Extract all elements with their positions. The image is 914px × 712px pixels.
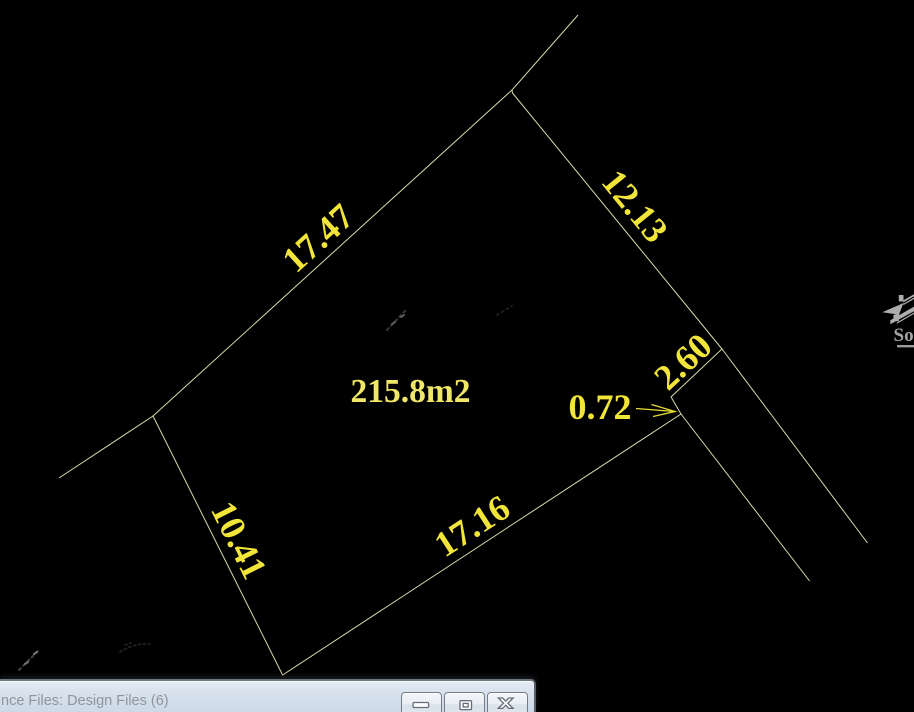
svg-text:2.60: 2.60 bbox=[646, 325, 719, 397]
svg-text:17.16: 17.16 bbox=[427, 487, 517, 565]
svg-text:12.13: 12.13 bbox=[594, 162, 676, 250]
svg-text:0.72: 0.72 bbox=[569, 387, 632, 427]
svg-text:215.8m2: 215.8m2 bbox=[350, 373, 470, 410]
svg-text:So: So bbox=[894, 325, 914, 346]
svg-text:10.41: 10.41 bbox=[203, 495, 275, 585]
